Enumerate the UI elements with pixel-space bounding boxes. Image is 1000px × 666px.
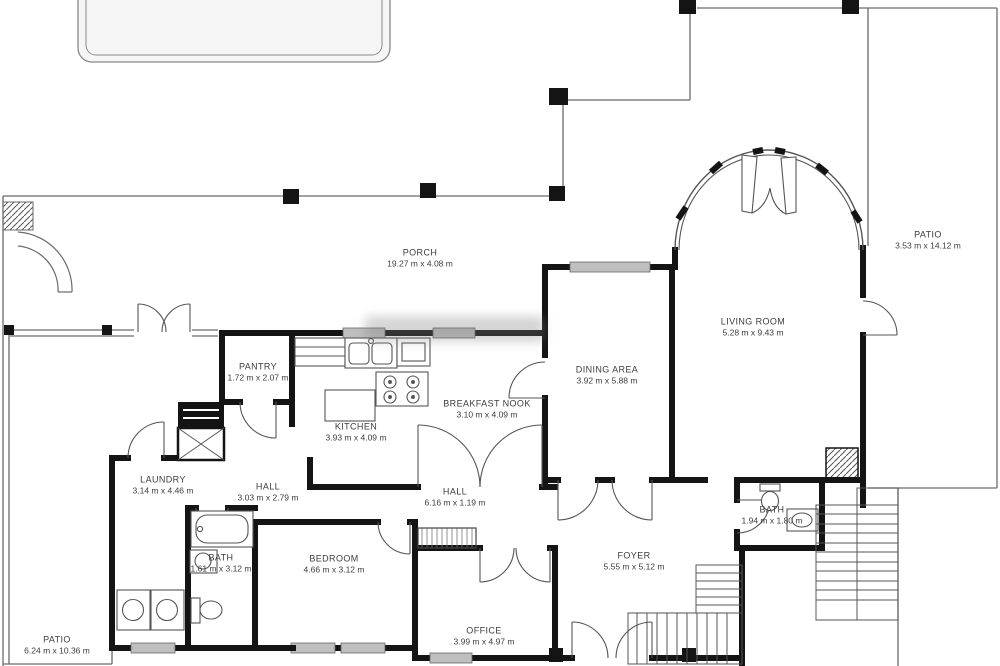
landscape-steps [18, 232, 72, 292]
bay-arch [675, 150, 863, 250]
room-label-hall-2: HALL 6.16 m x 1.19 m [425, 487, 486, 508]
room-label-living-room: LIVING ROOM 5.28 m x 9.43 m [721, 317, 785, 338]
hatch-area-topleft [3, 202, 33, 230]
fireplace-icon [826, 448, 858, 480]
room-label-office: OFFICE 3.99 m x 4.97 m [454, 626, 515, 647]
washer-dryer-icons [117, 590, 184, 630]
hall-closet [418, 528, 476, 548]
french-doors-icon [742, 155, 796, 214]
stairs-rear [816, 488, 898, 620]
closet-box [178, 402, 224, 460]
bathtub-icon [191, 511, 253, 547]
room-label-breakfast-nook: BREAKFAST NOOK 3.10 m x 4.09 m [443, 399, 530, 420]
room-label-dining-area: DINING AREA 3.92 m x 5.88 m [576, 365, 638, 386]
pool [78, 0, 390, 62]
room-label-foyer: FOYER 5.55 m x 5.12 m [604, 551, 665, 572]
room-label-bath-right: BATH 1.94 m x 1.80 m [742, 505, 803, 526]
stove-icon [376, 372, 428, 406]
room-label-bath-left: BATH 1.61 m x 3.12 m [191, 553, 252, 574]
kitchen-island [325, 390, 375, 421]
sink-icon [345, 338, 397, 368]
room-label-patio-right: PATIO 3.53 m x 14.12 m [895, 230, 961, 251]
toilet-icon [191, 598, 222, 623]
room-label-hall-1: HALL 3.03 m x 2.79 m [238, 482, 299, 503]
room-label-porch: PORCH 19.27 m x 4.08 m [387, 248, 453, 269]
room-label-bedroom: BEDROOM 4.66 m x 3.12 m [304, 554, 365, 575]
floor-plan: PORCH 19.27 m x 4.08 m PATIO 3.53 m x 14… [0, 0, 1000, 666]
room-label-pantry: PANTRY 1.72 m x 2.07 m [228, 362, 289, 383]
kitchen-fixtures [295, 338, 430, 421]
room-label-patio-left: PATIO 6.24 m x 10.36 m [24, 635, 90, 656]
room-label-laundry: LAUNDRY 3.14 m x 4.46 m [133, 475, 194, 496]
room-label-kitchen: KITCHEN 3.93 m x 4.09 m [326, 422, 387, 443]
watermark-smudge [365, 316, 545, 342]
